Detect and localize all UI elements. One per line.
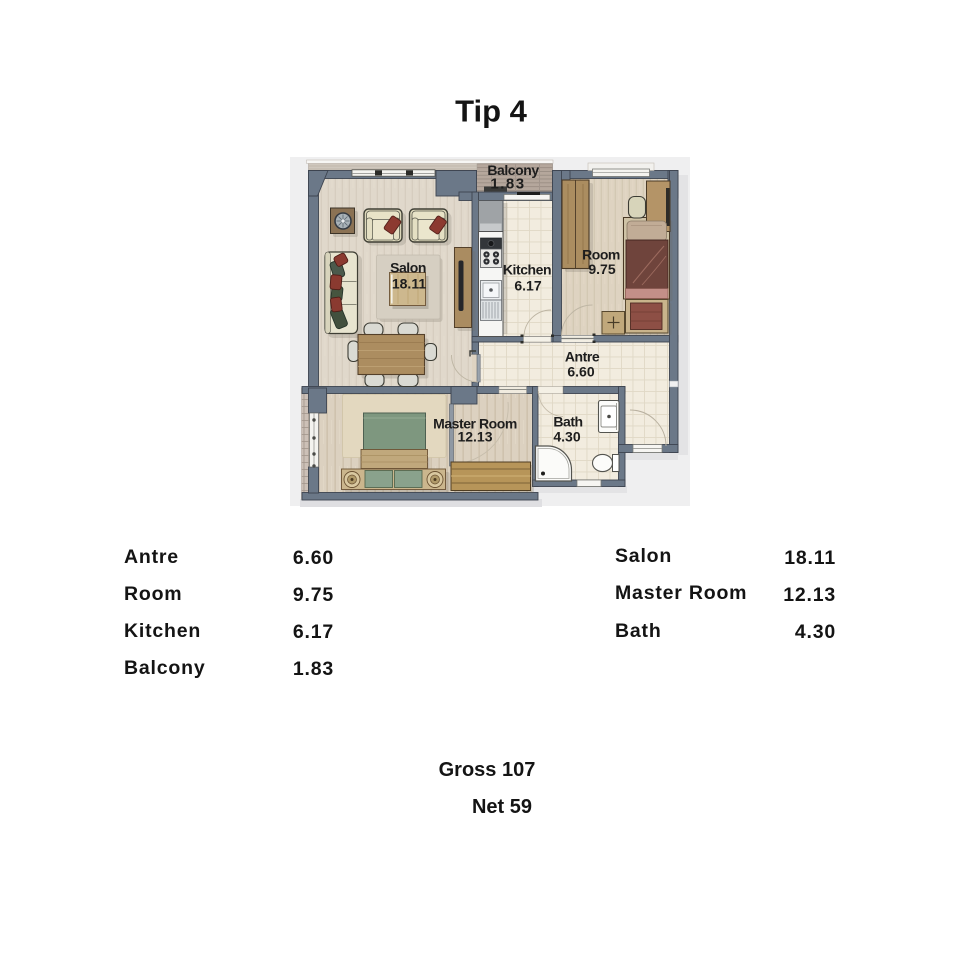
- svg-text:Net 59: Net 59: [472, 796, 532, 818]
- svg-text:9.75: 9.75: [588, 261, 615, 277]
- svg-text:6.17: 6.17: [514, 278, 541, 294]
- svg-text:1.83: 1.83: [293, 658, 334, 680]
- svg-text:Kitchen: Kitchen: [503, 262, 551, 278]
- svg-text:Salon: Salon: [615, 545, 672, 567]
- svg-text:9.75: 9.75: [293, 584, 334, 606]
- svg-text:18.11: 18.11: [392, 276, 426, 292]
- svg-text:12.13: 12.13: [783, 584, 836, 606]
- svg-text:Master Room: Master Room: [615, 582, 747, 604]
- svg-text:Bath: Bath: [615, 620, 662, 642]
- svg-text:Antre: Antre: [565, 349, 600, 365]
- svg-text:Kitchen: Kitchen: [124, 620, 201, 642]
- svg-text:Gross 107: Gross 107: [439, 759, 536, 781]
- svg-text:4.30: 4.30: [795, 621, 836, 643]
- svg-text:1.83: 1.83: [490, 176, 525, 193]
- svg-text:Balcony: Balcony: [124, 657, 205, 679]
- svg-text:6.60: 6.60: [293, 547, 334, 569]
- svg-text:6.60: 6.60: [567, 364, 594, 380]
- svg-text:12.13: 12.13: [457, 429, 492, 445]
- svg-text:6.17: 6.17: [293, 621, 334, 643]
- svg-text:Room: Room: [124, 583, 182, 605]
- svg-text:18.11: 18.11: [784, 547, 836, 569]
- svg-text:4.30: 4.30: [553, 429, 580, 445]
- svg-text:Tip 4: Tip 4: [455, 94, 528, 129]
- svg-text:Bath: Bath: [553, 414, 582, 430]
- svg-text:Antre: Antre: [124, 546, 179, 568]
- svg-text:Salon: Salon: [390, 260, 426, 276]
